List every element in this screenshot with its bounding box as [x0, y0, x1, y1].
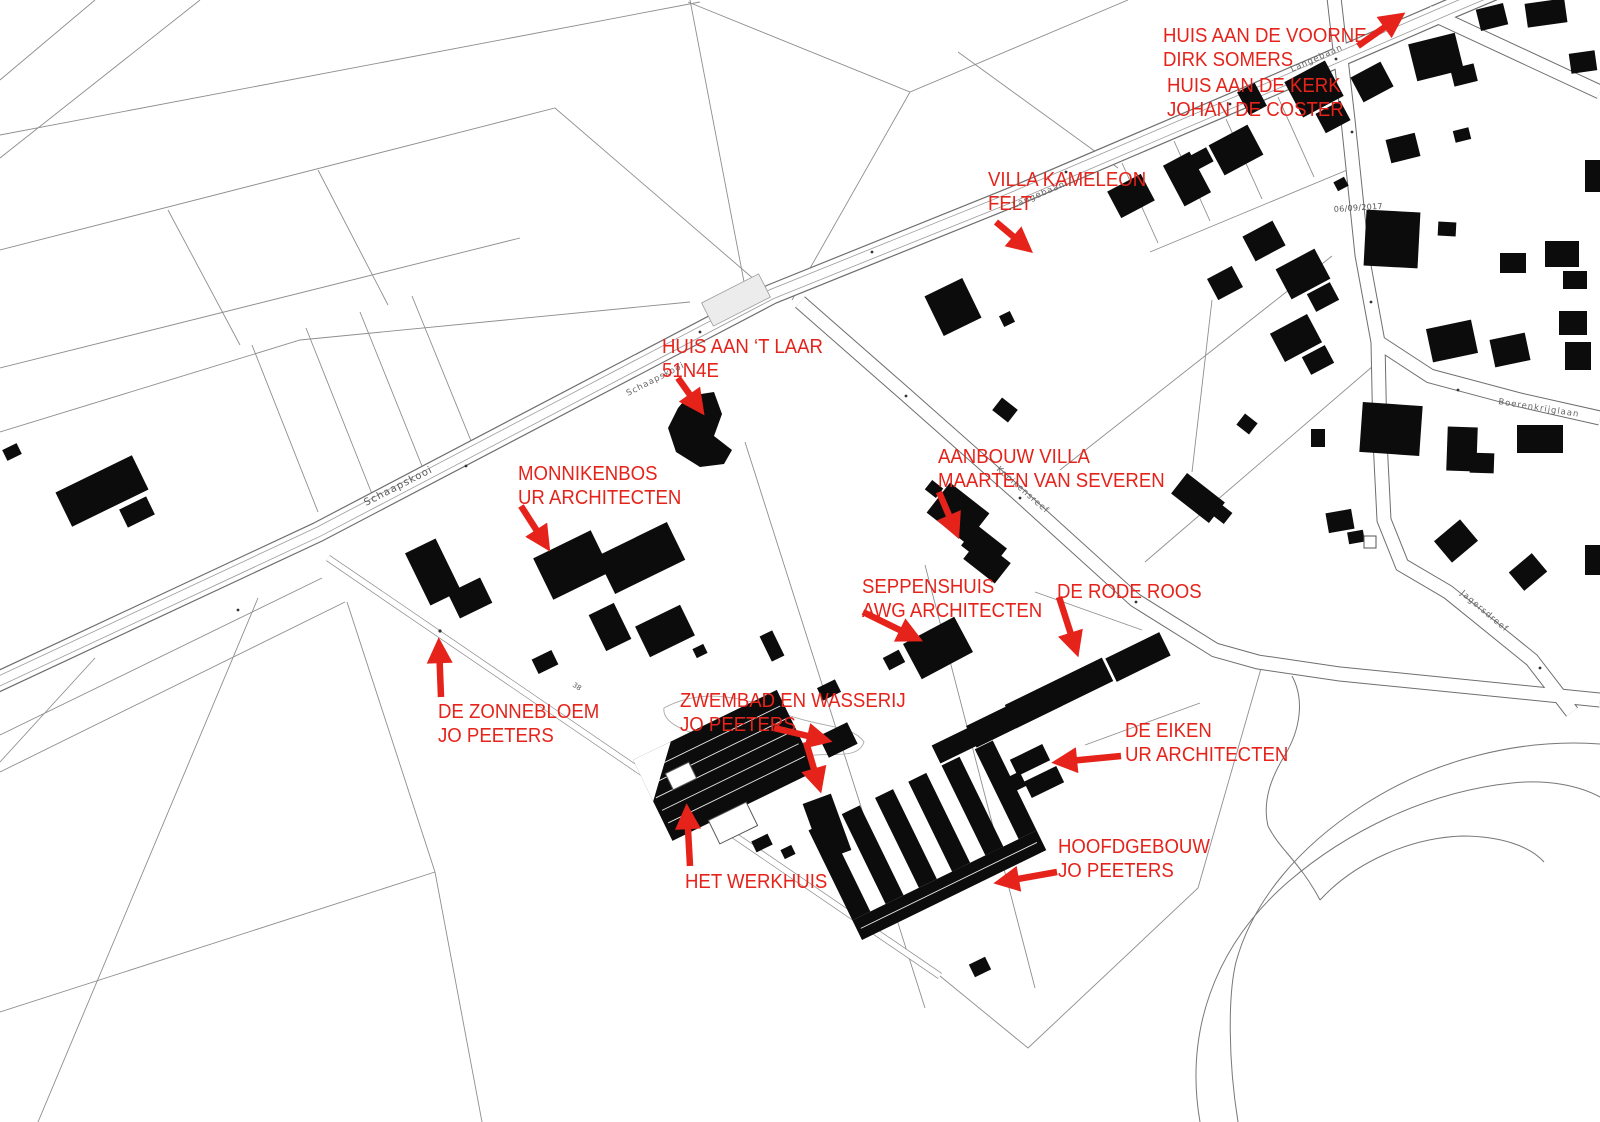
building-footprint [1545, 241, 1579, 267]
building-footprint [1426, 320, 1478, 363]
building-footprint [1325, 509, 1354, 533]
building-footprint [1470, 453, 1495, 474]
building-footprint [1364, 210, 1421, 269]
building-footprint [1333, 177, 1348, 191]
building-footprint [1434, 519, 1478, 562]
outlined-building [1364, 536, 1376, 548]
building-footprint [1010, 744, 1050, 776]
building-footprint [1525, 0, 1568, 28]
building-footprint [1559, 311, 1587, 335]
building-footprint [924, 278, 981, 336]
building-footprint [1565, 342, 1591, 370]
annotation-hoofdgebouw: HOOFDGEBOUWJO PEETERS [1058, 836, 1210, 883]
building-footprint [1509, 553, 1547, 591]
arrow-villa-kameleon [996, 222, 1027, 248]
building-footprint [1489, 333, 1530, 368]
building-footprint [992, 398, 1018, 423]
path-number-label: 38 [571, 681, 583, 693]
annotation-monnikenbos: MONNIKENBOSUR ARCHITECTEN [518, 463, 681, 510]
building-footprint [1347, 530, 1365, 545]
building-footprint [589, 603, 632, 651]
building-footprint [883, 650, 905, 671]
building-footprint [1242, 221, 1285, 262]
annotation-aanbouw-villa: AANBOUW VILLAMAARTEN VAN SEVEREN [938, 446, 1165, 493]
arrow-hoofdgebouw [1001, 872, 1057, 882]
building-footprint [1563, 271, 1587, 289]
annotation-het-werkhuis: HET WERKHUIS [685, 871, 827, 895]
building-footprint [1500, 253, 1526, 273]
building-footprint [903, 617, 973, 680]
building-footprint [1438, 222, 1457, 237]
annotation-villa-kameleon: VILLA KAMELEONFELT [988, 169, 1146, 216]
building-footprint [635, 605, 695, 657]
building-footprint [1311, 429, 1325, 447]
arrow-de-zonnebloem [439, 645, 441, 697]
annotation-de-zonnebloem: DE ZONNEBLOEMJO PEETERS [438, 701, 599, 748]
annotation-huis-aan-de-kerk: HUIS AAN DE KERKJOHAN DE COSTER [1167, 75, 1344, 122]
building-footprint [1236, 414, 1257, 435]
roads-layer [0, 0, 1600, 976]
building-footprint [999, 311, 1015, 327]
building-footprint [1209, 125, 1264, 176]
site-plan-map: Schaapskooi Schaapskooi Langebaan Langeb… [0, 0, 1600, 1122]
building-footprint [597, 522, 686, 594]
building-footprint [760, 630, 785, 661]
buildings-layer [2, 0, 1600, 977]
annotation-de-rode-roos: DE RODE ROOS [1057, 581, 1202, 605]
building-footprint [532, 650, 559, 674]
building-footprint [1359, 402, 1422, 456]
building-footprint [780, 845, 795, 859]
building-footprint [692, 644, 707, 658]
building-footprint [969, 957, 991, 977]
map-canvas: Schaapskooi Schaapskooi Langebaan Langeb… [0, 0, 1600, 1122]
annotation-de-eiken: DE EIKENUR ARCHITECTEN [1125, 720, 1288, 767]
building-footprint [1517, 425, 1563, 453]
building-footprint [1569, 50, 1598, 73]
annotation-huis-aan-t-laar: HUIS AAN ‘T LAAR51N4E [662, 336, 823, 383]
annotation-zwembad-en-wasserij: ZWEMBAD EN WASSERIJJO PEETERS [680, 690, 906, 737]
building-footprint [2, 443, 22, 461]
annotation-huis-aan-de-voorne: HUIS AAN DE VOORNEDIRK SOMERS [1163, 25, 1367, 72]
building-footprint [932, 710, 1013, 763]
building-footprint [1386, 133, 1421, 164]
building-footprint [1024, 766, 1064, 798]
building-footprint [1207, 266, 1243, 300]
building-footprint [1105, 632, 1170, 682]
building-footprint [1453, 127, 1471, 143]
arrow-monnikenbos [521, 506, 546, 545]
building-footprint [1585, 545, 1600, 575]
annotation-seppenshuis: SEPPENSHUISAWG ARCHITECTEN [862, 576, 1042, 623]
building-huis-aan-t-laar [668, 392, 732, 467]
arrow-de-rode-roos [1059, 597, 1076, 650]
arrow-het-werkhuis [687, 811, 690, 866]
building-footprint [1585, 160, 1600, 192]
arrow-de-eiken [1059, 756, 1121, 762]
